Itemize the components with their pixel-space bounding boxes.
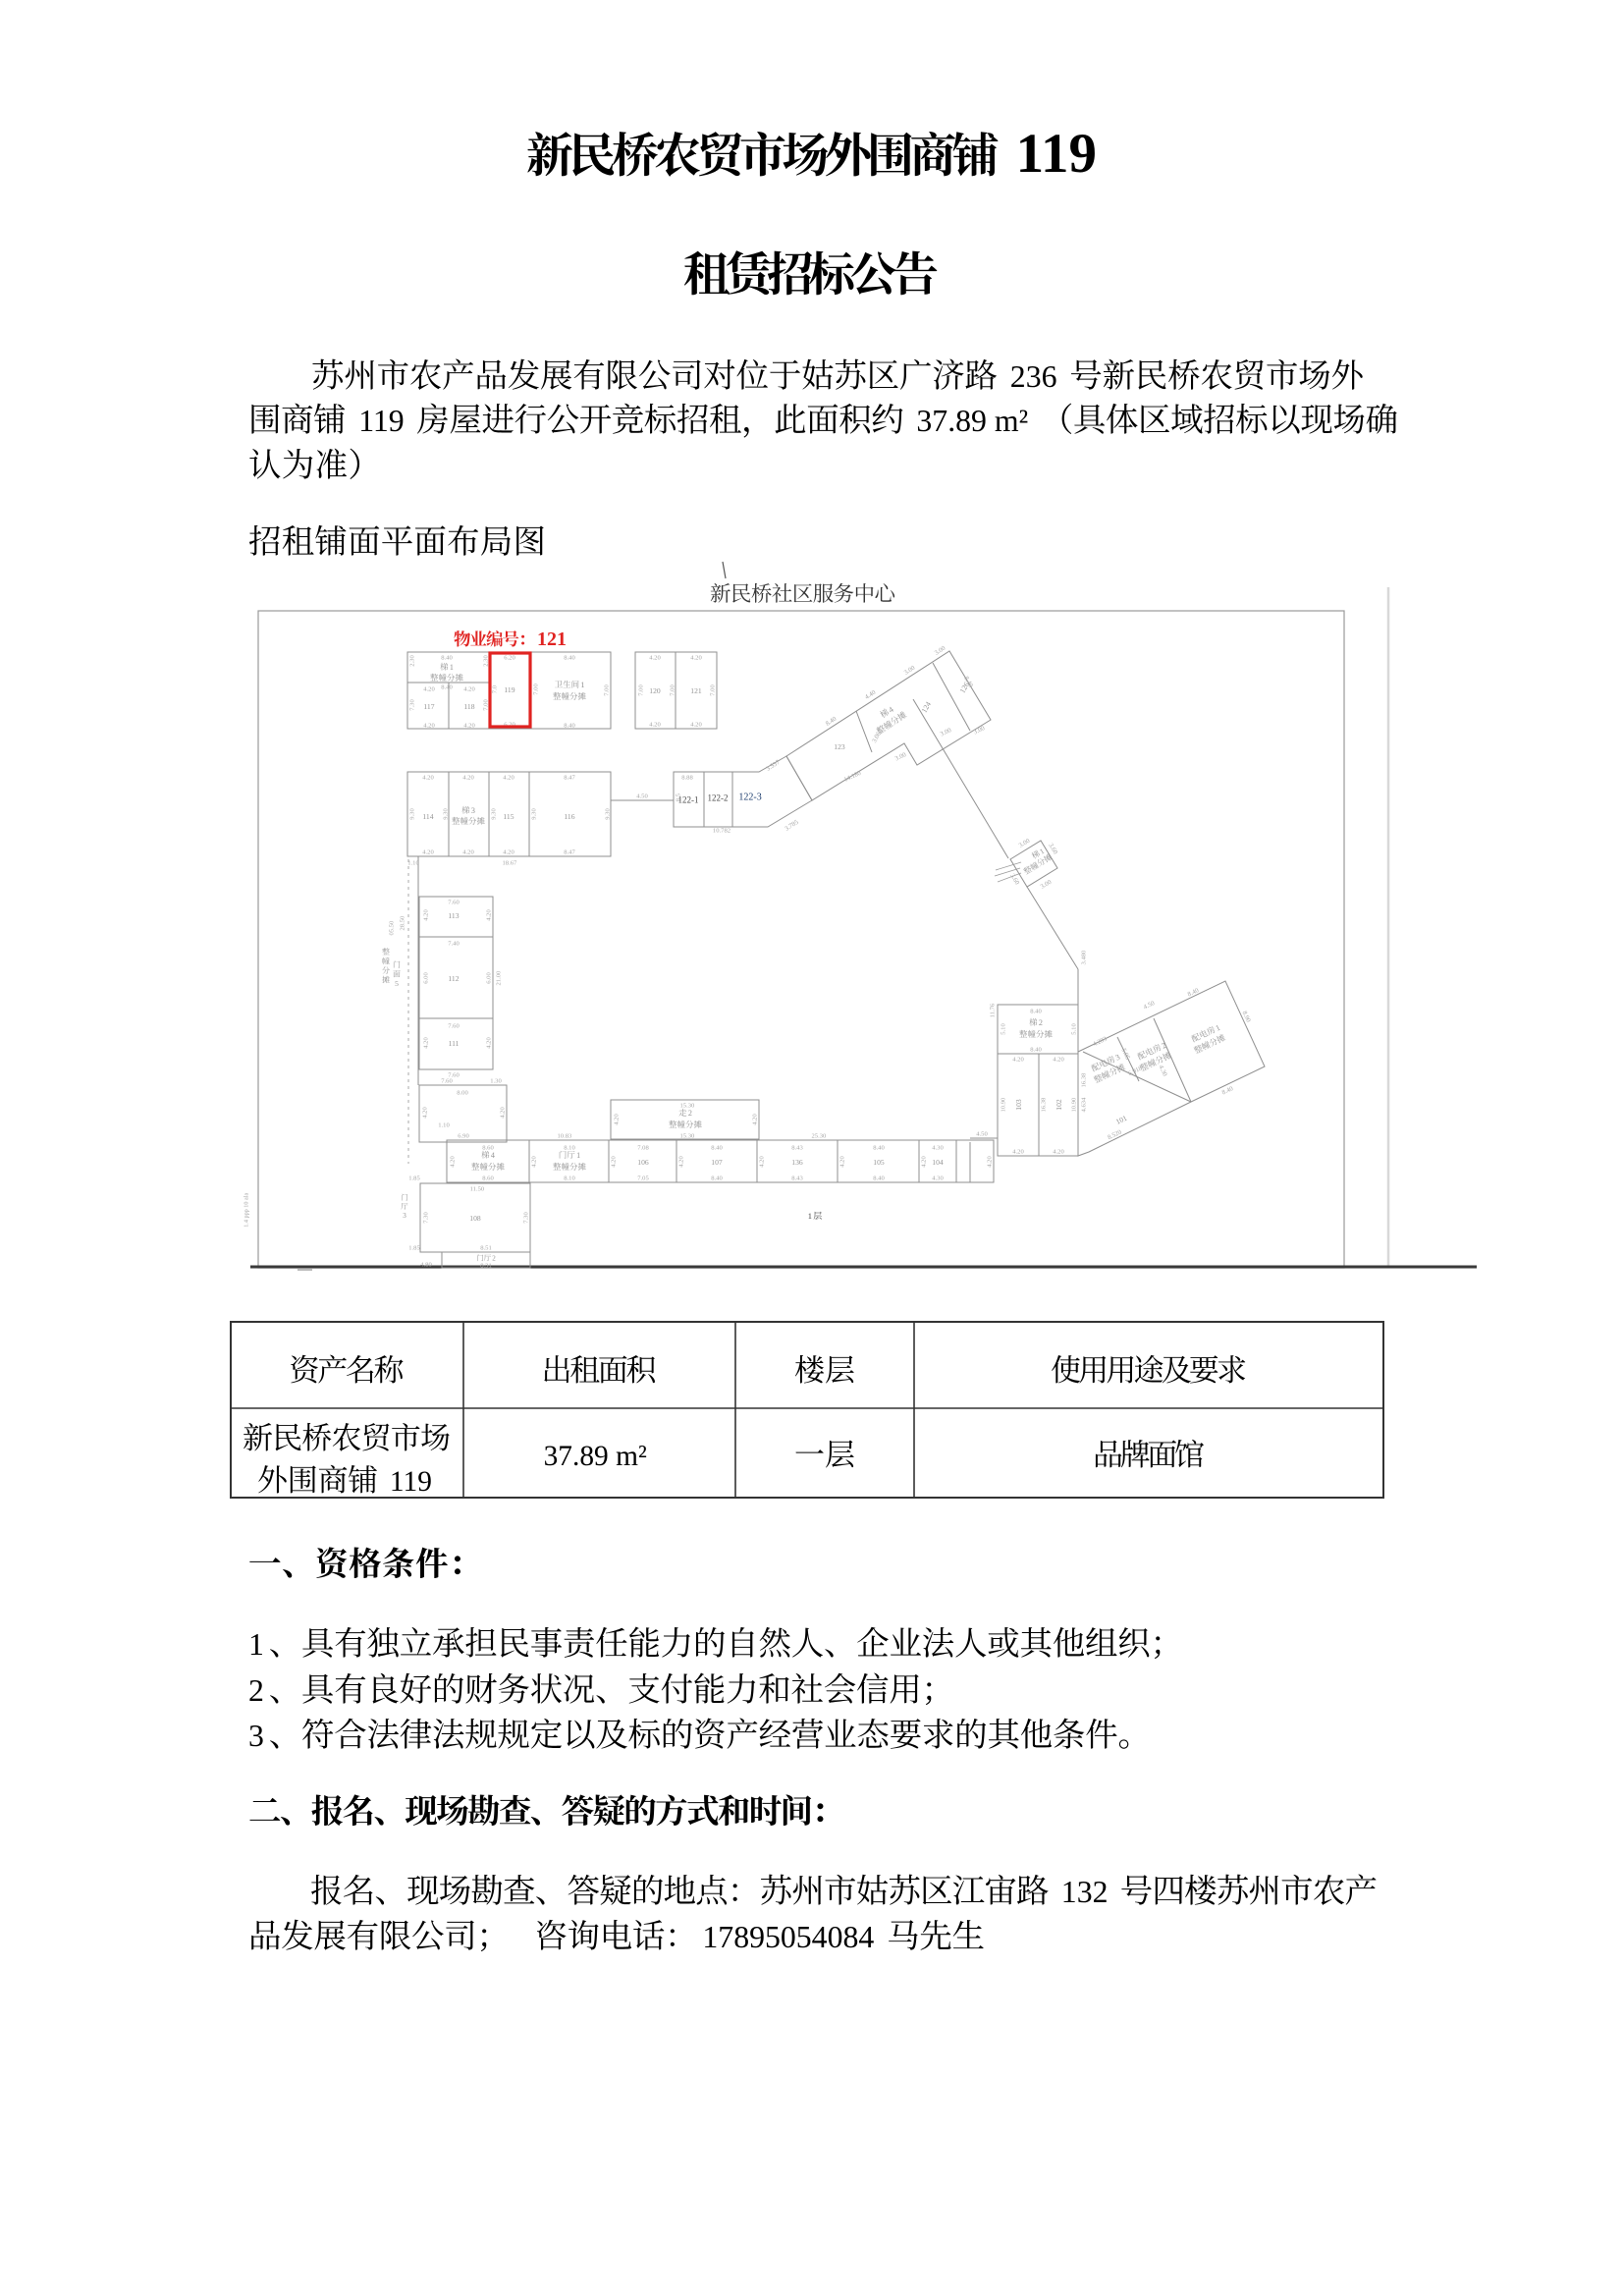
svg-text:1.4 ppp 10 ala: 1.4 ppp 10 ala	[243, 1192, 249, 1227]
svg-text:5.05: 5.05	[1120, 1048, 1132, 1062]
svg-text:25.30: 25.30	[812, 1132, 828, 1139]
svg-text:8.40: 8.40	[711, 1175, 723, 1181]
svg-text:4.80: 4.80	[420, 1261, 432, 1268]
svg-text:3: 3	[1114, 1053, 1121, 1063]
svg-text:236: 236	[1010, 359, 1057, 394]
svg-text:4.20: 4.20	[690, 654, 702, 661]
svg-text:10.90: 10.90	[1000, 1097, 1006, 1113]
svg-text:113: 113	[448, 911, 459, 920]
svg-text:4.20: 4.20	[462, 774, 474, 781]
svg-text:124: 124	[920, 700, 934, 715]
svg-text:10.83: 10.83	[558, 1132, 573, 1139]
svg-text:3.785: 3.785	[784, 818, 800, 832]
svg-text:119: 119	[358, 404, 405, 438]
svg-text:7.30: 7.30	[408, 699, 415, 711]
svg-text:4.30: 4.30	[1158, 1065, 1169, 1078]
svg-text:7.08: 7.08	[637, 1144, 649, 1151]
svg-text:3.00: 3.00	[894, 751, 908, 763]
svg-text:5: 5	[395, 979, 399, 988]
svg-text:102: 102	[1055, 1099, 1063, 1111]
svg-text:120: 120	[649, 686, 661, 695]
svg-text:4.20: 4.20	[690, 721, 702, 728]
svg-text:3: 3	[403, 1212, 406, 1220]
svg-text:1.30: 1.30	[490, 1077, 502, 1084]
svg-text:122-2: 122-2	[708, 793, 729, 802]
svg-text:11.76: 11.76	[989, 1003, 996, 1017]
svg-text:6.00: 6.00	[485, 972, 492, 984]
svg-text:37.89 m²: 37.89 m²	[544, 1441, 647, 1472]
svg-text:1: 1	[580, 681, 584, 689]
svg-text:3: 3	[471, 806, 475, 815]
svg-text:4.20: 4.20	[920, 1156, 927, 1168]
svg-text:3.00: 3.00	[903, 664, 917, 677]
svg-text:5.10: 5.10	[1070, 1023, 1077, 1035]
svg-text:103: 103	[1014, 1099, 1023, 1111]
svg-text:1.85: 1.85	[408, 1244, 420, 1251]
svg-text:4.20: 4.20	[649, 721, 661, 728]
svg-text:37.89 m²: 37.89 m²	[916, 404, 1028, 438]
svg-text:108: 108	[469, 1214, 481, 1223]
svg-text:4.20: 4.20	[422, 848, 434, 855]
svg-text:8.40: 8.40	[873, 1175, 885, 1181]
svg-text:3.00: 3.00	[934, 644, 947, 657]
svg-text:4.634: 4.634	[1080, 1097, 1087, 1113]
svg-text:8.40: 8.40	[1030, 1008, 1042, 1014]
svg-text:4.20: 4.20	[1012, 1056, 1024, 1063]
svg-text:4.283: 4.283	[1092, 1035, 1109, 1048]
svg-text:1: 1	[248, 1627, 264, 1662]
svg-text:7.0: 7.0	[491, 684, 498, 693]
svg-text:2: 2	[248, 1673, 264, 1708]
svg-text:107: 107	[711, 1158, 723, 1167]
svg-text:104: 104	[932, 1158, 944, 1167]
svg-text:4.20: 4.20	[1053, 1056, 1064, 1063]
svg-text:4.20: 4.20	[610, 1156, 617, 1168]
svg-text:7.60: 7.60	[448, 899, 460, 905]
svg-text:4.20: 4.20	[485, 909, 492, 921]
svg-text:3.00: 3.00	[1040, 878, 1054, 890]
svg-text:119: 119	[1016, 123, 1097, 185]
svg-text:15.30: 15.30	[680, 1132, 696, 1139]
svg-text:4.20: 4.20	[677, 1156, 684, 1168]
svg-text:7.00: 7.00	[603, 684, 610, 696]
svg-text:4.20: 4.20	[1053, 1148, 1064, 1155]
svg-text:2: 2	[688, 1109, 692, 1118]
svg-text:2: 2	[1039, 1018, 1043, 1027]
svg-text:7.00: 7.00	[482, 699, 489, 711]
svg-text:4.20: 4.20	[649, 654, 661, 661]
svg-text:3.480: 3.480	[1080, 950, 1087, 965]
svg-text:4.20: 4.20	[503, 774, 514, 781]
svg-text:7.60: 7.60	[448, 1022, 460, 1029]
svg-text:4.30: 4.30	[932, 1175, 944, 1181]
svg-text:117: 117	[423, 702, 434, 711]
svg-text:4.20: 4.20	[751, 1114, 758, 1125]
svg-text:16.38: 16.38	[1040, 1097, 1047, 1113]
svg-text:9.30: 9.30	[490, 808, 497, 820]
svg-text:10.782: 10.782	[713, 827, 730, 834]
svg-text:119: 119	[390, 1466, 432, 1498]
svg-text:132: 132	[1061, 1875, 1109, 1909]
svg-text:4: 4	[491, 1151, 495, 1160]
svg-text:4.30: 4.30	[932, 1144, 944, 1151]
svg-text:7.00: 7.00	[669, 684, 676, 696]
svg-text:8.43: 8.43	[791, 1175, 803, 1181]
svg-text:11.50: 11.50	[470, 1185, 485, 1192]
svg-text:4.50: 4.50	[636, 793, 648, 799]
svg-text:122-3: 122-3	[738, 793, 761, 803]
svg-text:8.47: 8.47	[564, 774, 575, 781]
svg-text:4.20: 4.20	[449, 1156, 456, 1168]
svg-text:3.00: 3.00	[973, 725, 987, 737]
svg-text:4.20: 4.20	[503, 848, 514, 855]
svg-text:4.20: 4.20	[423, 685, 435, 692]
svg-text:9.30: 9.30	[408, 808, 415, 820]
svg-text:18.67: 18.67	[503, 859, 518, 866]
svg-text:118: 118	[463, 702, 474, 711]
svg-text:3.60: 3.60	[1008, 873, 1020, 887]
svg-text:8.40: 8.40	[711, 1144, 723, 1151]
svg-text:8.40: 8.40	[825, 715, 839, 728]
svg-text:4.20: 4.20	[423, 722, 435, 729]
svg-text:8.40: 8.40	[564, 654, 575, 661]
svg-text:8.10: 8.10	[564, 1175, 575, 1181]
svg-text:3: 3	[248, 1719, 264, 1753]
svg-text:8.31: 8.31	[480, 1262, 492, 1269]
svg-text:7.40: 7.40	[448, 940, 460, 947]
svg-text:121: 121	[537, 629, 567, 650]
svg-text:2: 2	[1161, 1041, 1167, 1051]
svg-text:8.47: 8.47	[564, 848, 575, 855]
svg-text:4.20: 4.20	[986, 1156, 993, 1168]
svg-text:1: 1	[450, 663, 454, 672]
svg-text:6.90: 6.90	[458, 1132, 469, 1139]
svg-text:9.30: 9.30	[442, 808, 449, 820]
svg-text:4.20: 4.20	[758, 1156, 765, 1168]
svg-text:5.10: 5.10	[1000, 1023, 1006, 1035]
svg-text:8.40: 8.40	[441, 654, 453, 661]
svg-text:101: 101	[1114, 1114, 1128, 1126]
svg-text:4.20: 4.20	[422, 1037, 429, 1049]
svg-text:8.00: 8.00	[457, 1089, 468, 1096]
svg-text:8.40: 8.40	[1030, 1046, 1042, 1053]
svg-text:7.00: 7.00	[709, 684, 716, 696]
svg-text:7.00: 7.00	[637, 684, 644, 696]
svg-text:115: 115	[503, 812, 514, 821]
svg-text:8.51: 8.51	[480, 1244, 492, 1251]
svg-text:4.20: 4.20	[463, 722, 475, 729]
svg-text:1: 1	[576, 1151, 580, 1160]
svg-text:114: 114	[422, 812, 433, 821]
svg-text:112: 112	[448, 974, 459, 983]
svg-text:7.00: 7.00	[532, 683, 539, 695]
svg-text:4.50: 4.50	[976, 1130, 988, 1137]
svg-text:4.20: 4.20	[463, 685, 475, 692]
svg-text:7.60: 7.60	[441, 1077, 453, 1084]
svg-text:4.20: 4.20	[1012, 1148, 1024, 1155]
svg-text:8.40: 8.40	[441, 683, 453, 690]
svg-text:121: 121	[690, 686, 702, 695]
svg-text:14.180: 14.180	[843, 770, 863, 784]
svg-text:2: 2	[492, 1255, 496, 1263]
svg-text:4.20: 4.20	[485, 1037, 492, 1049]
svg-text:4.20: 4.20	[422, 774, 434, 781]
svg-text:2.30: 2.30	[408, 655, 415, 667]
svg-text:7.30: 7.30	[422, 1212, 429, 1224]
svg-text:105: 105	[873, 1158, 885, 1167]
svg-text:8.40: 8.40	[873, 1144, 885, 1151]
svg-text:10.90: 10.90	[1070, 1097, 1077, 1113]
svg-text:1: 1	[808, 1211, 812, 1221]
svg-text:17895054084: 17895054084	[702, 1920, 874, 1954]
svg-text:4.20: 4.20	[422, 909, 429, 921]
svg-text:1.85: 1.85	[408, 1175, 420, 1181]
svg-text:9.30: 9.30	[530, 808, 537, 820]
svg-text:28.50: 28.50	[399, 915, 406, 931]
svg-text:05.50: 05.50	[388, 920, 395, 936]
svg-text:4.20: 4.20	[839, 1156, 845, 1168]
svg-text:3.00: 3.00	[940, 727, 953, 738]
svg-text:8.40: 8.40	[564, 722, 575, 729]
svg-text:106: 106	[637, 1158, 649, 1167]
svg-text:136: 136	[791, 1158, 803, 1167]
svg-text:123: 123	[834, 742, 845, 751]
svg-text:2.30: 2.30	[482, 655, 489, 667]
svg-text:119: 119	[504, 685, 514, 694]
svg-text:8.60: 8.60	[482, 1175, 494, 1181]
svg-text:4.50: 4.50	[1143, 1000, 1157, 1011]
svg-text:4.20: 4.20	[421, 1107, 428, 1119]
svg-text:7.30: 7.30	[522, 1212, 529, 1224]
svg-text:3.060: 3.060	[871, 728, 885, 744]
svg-text:6.00: 6.00	[422, 972, 429, 984]
svg-text:4.20: 4.20	[613, 1114, 620, 1125]
svg-text:9.30: 9.30	[604, 808, 611, 820]
svg-text:16.38: 16.38	[1080, 1072, 1087, 1088]
svg-text:8.5: 8.5	[675, 793, 681, 801]
svg-text:1: 1	[1215, 1023, 1221, 1033]
svg-text:8.60: 8.60	[482, 1144, 494, 1151]
svg-text:8.10: 8.10	[564, 1144, 575, 1151]
svg-text:8.43: 8.43	[791, 1144, 803, 1151]
svg-text:7.05: 7.05	[637, 1175, 649, 1181]
svg-text:4.20: 4.20	[499, 1107, 506, 1119]
svg-text:4.20: 4.20	[530, 1156, 537, 1168]
svg-text:8.88: 8.88	[681, 774, 693, 781]
svg-text:116: 116	[564, 812, 574, 821]
svg-text:4.20: 4.20	[462, 848, 474, 855]
svg-text:21.00: 21.00	[495, 970, 502, 986]
svg-text:1.10: 1.10	[438, 1121, 450, 1128]
svg-text:111: 111	[449, 1039, 460, 1048]
svg-text:15.30: 15.30	[680, 1102, 696, 1109]
svg-text:6.20: 6.20	[504, 654, 515, 661]
